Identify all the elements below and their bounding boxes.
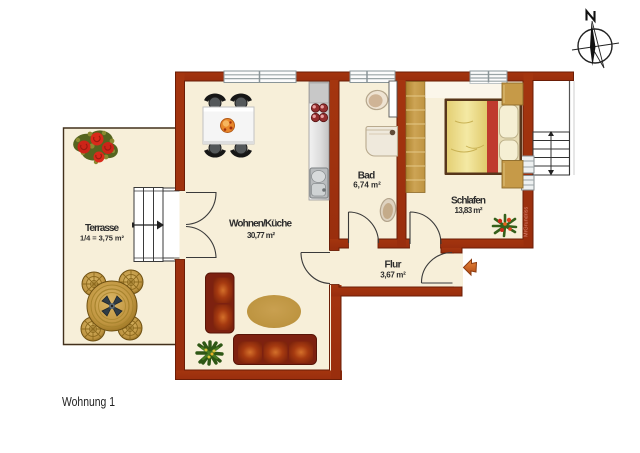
svg-text:1/4 = 3,75 m²: 1/4 = 3,75 m² <box>80 234 125 243</box>
svg-text:6,74 m²: 6,74 m² <box>353 181 381 190</box>
svg-text:3,67 m²: 3,67 m² <box>380 271 406 280</box>
svg-text:30,77 m²: 30,77 m² <box>247 231 275 240</box>
svg-text:Schlafen: Schlafen <box>451 196 486 207</box>
svg-text:Flur: Flur <box>385 260 402 271</box>
svg-text:Wohnen/Küche: Wohnen/Küche <box>229 219 292 230</box>
svg-text:13,83 m²: 13,83 m² <box>455 206 483 215</box>
svg-text:Wohnung 1: Wohnung 1 <box>62 395 115 409</box>
svg-text:MrGrundriss: MrGrundriss <box>524 206 530 237</box>
svg-text:Terrasse: Terrasse <box>85 223 119 234</box>
